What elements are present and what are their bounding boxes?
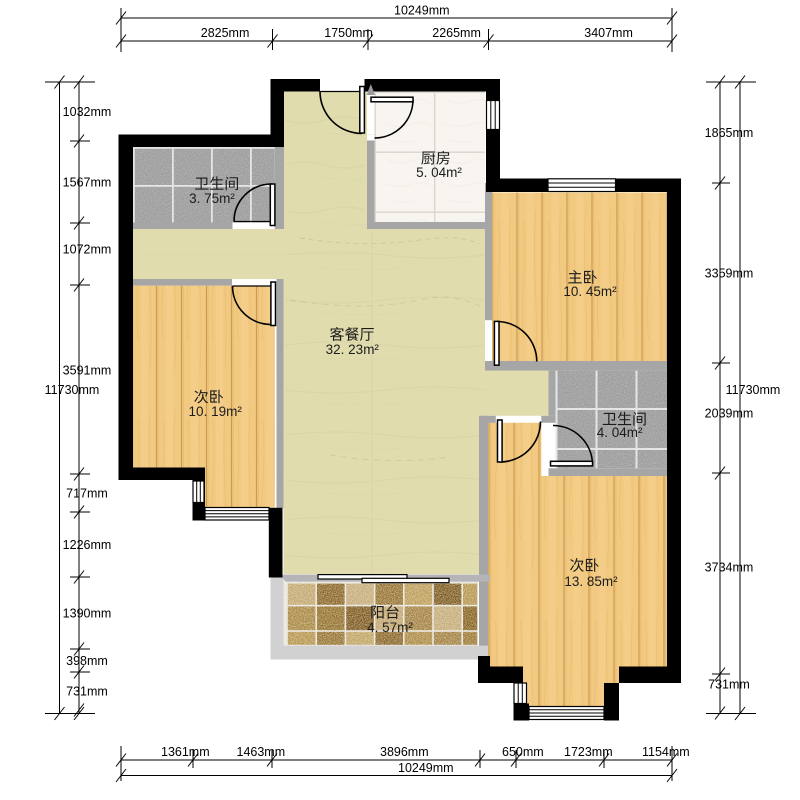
svg-text:1865mm: 1865mm xyxy=(705,126,754,140)
svg-text:10249mm: 10249mm xyxy=(398,761,454,775)
svg-text:1463mm: 1463mm xyxy=(237,745,286,759)
svg-text:5. 04m²: 5. 04m² xyxy=(416,165,462,180)
svg-text:3896mm: 3896mm xyxy=(380,745,429,759)
svg-text:717mm: 717mm xyxy=(66,487,108,501)
svg-text:1390mm: 1390mm xyxy=(63,607,112,621)
svg-text:398mm: 398mm xyxy=(66,654,108,668)
svg-text:1072mm: 1072mm xyxy=(63,243,112,257)
svg-text:1361mm: 1361mm xyxy=(161,745,210,759)
svg-text:1226mm: 1226mm xyxy=(63,538,112,552)
svg-text:11730mm: 11730mm xyxy=(726,383,781,397)
svg-text:2265mm: 2265mm xyxy=(432,26,481,40)
svg-text:10249mm: 10249mm xyxy=(394,4,450,18)
svg-text:3. 75m²: 3. 75m² xyxy=(189,191,235,206)
svg-text:4. 57m²: 4. 57m² xyxy=(367,620,413,635)
svg-text:3407mm: 3407mm xyxy=(584,26,633,40)
svg-text:10. 19m²: 10. 19m² xyxy=(189,404,243,419)
svg-text:1723mm: 1723mm xyxy=(564,745,613,759)
svg-text:10. 45m²: 10. 45m² xyxy=(563,284,617,299)
svg-text:650mm: 650mm xyxy=(502,745,544,759)
svg-text:731mm: 731mm xyxy=(66,685,108,699)
svg-text:2039mm: 2039mm xyxy=(705,407,754,421)
svg-text:3591mm: 3591mm xyxy=(63,364,112,378)
svg-text:13. 85m²: 13. 85m² xyxy=(564,574,618,589)
svg-text:1154mm: 1154mm xyxy=(642,745,690,759)
svg-text:11730mm: 11730mm xyxy=(45,383,100,397)
svg-text:2825mm: 2825mm xyxy=(201,26,250,40)
svg-text:3734mm: 3734mm xyxy=(705,561,754,575)
svg-text:32. 23m²: 32. 23m² xyxy=(326,342,380,357)
svg-text:1750mm: 1750mm xyxy=(324,26,373,40)
svg-text:4. 04m²: 4. 04m² xyxy=(597,425,643,440)
svg-text:1567mm: 1567mm xyxy=(63,176,112,190)
svg-text:3359mm: 3359mm xyxy=(705,267,754,281)
svg-text:731mm: 731mm xyxy=(708,678,750,692)
svg-text:1032mm: 1032mm xyxy=(63,105,112,119)
